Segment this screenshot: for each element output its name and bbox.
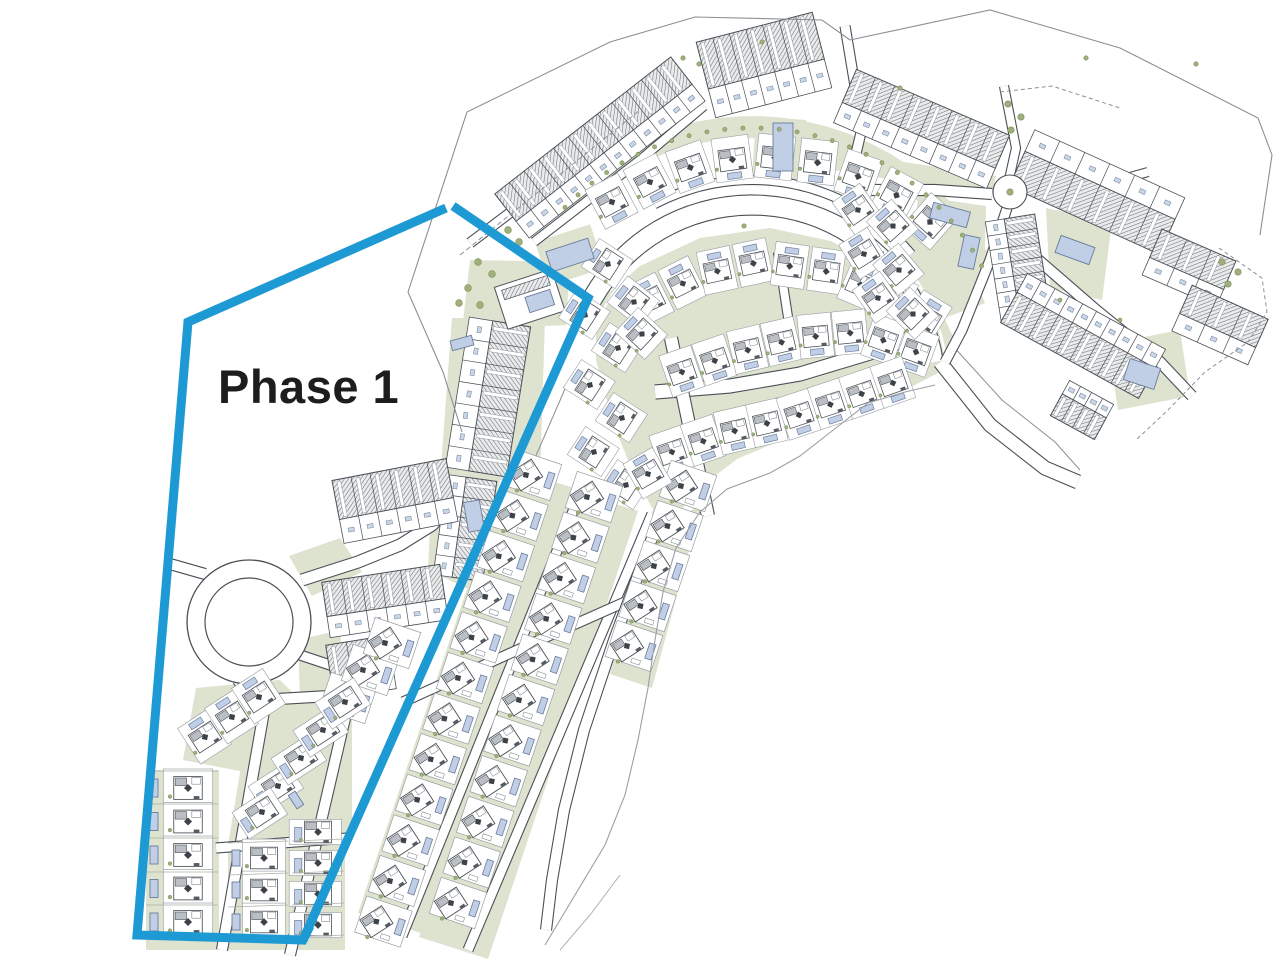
svg-text:Phase 1: Phase 1 [218,360,399,413]
